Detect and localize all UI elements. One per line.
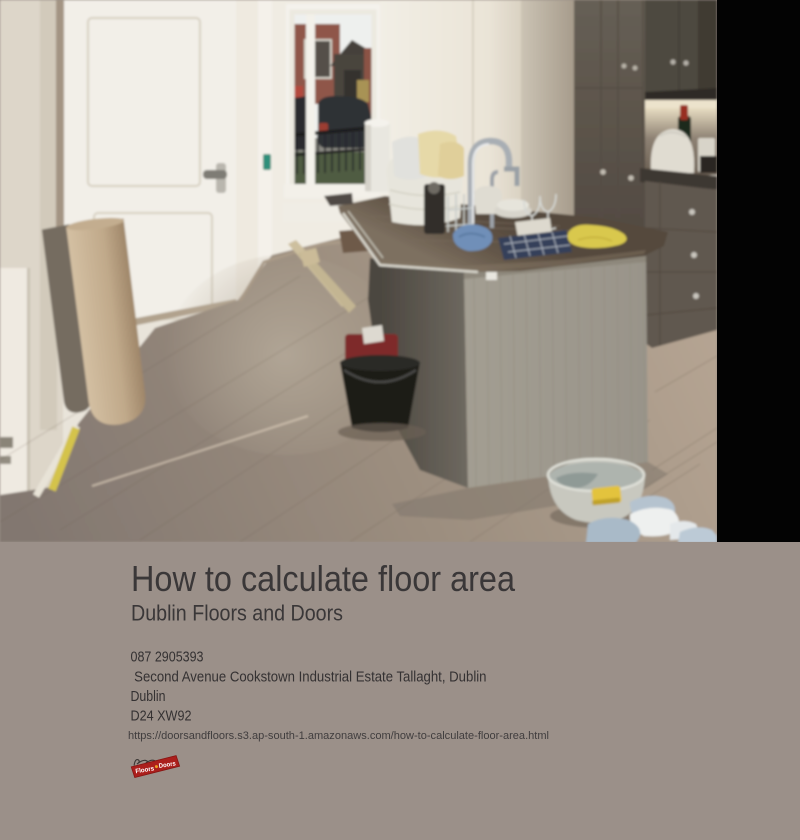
svg-text:087 2905393: 087 2905393 <box>131 649 204 665</box>
svg-text:Dublin: Dublin <box>131 689 166 705</box>
svg-text:How to calculate floor area: How to calculate floor area <box>131 558 516 599</box>
svg-text:D24 XW92: D24 XW92 <box>131 709 192 725</box>
svg-text:Dublin Floors and Doors: Dublin Floors and Doors <box>131 601 343 626</box>
svg-text:https://doorsandfloors.s3.ap-s: https://doorsandfloors.s3.ap-south-1.ama… <box>128 730 549 742</box>
svg-text:Second Avenue Cookstown Indust: Second Avenue Cookstown Industrial Estat… <box>131 669 487 685</box>
